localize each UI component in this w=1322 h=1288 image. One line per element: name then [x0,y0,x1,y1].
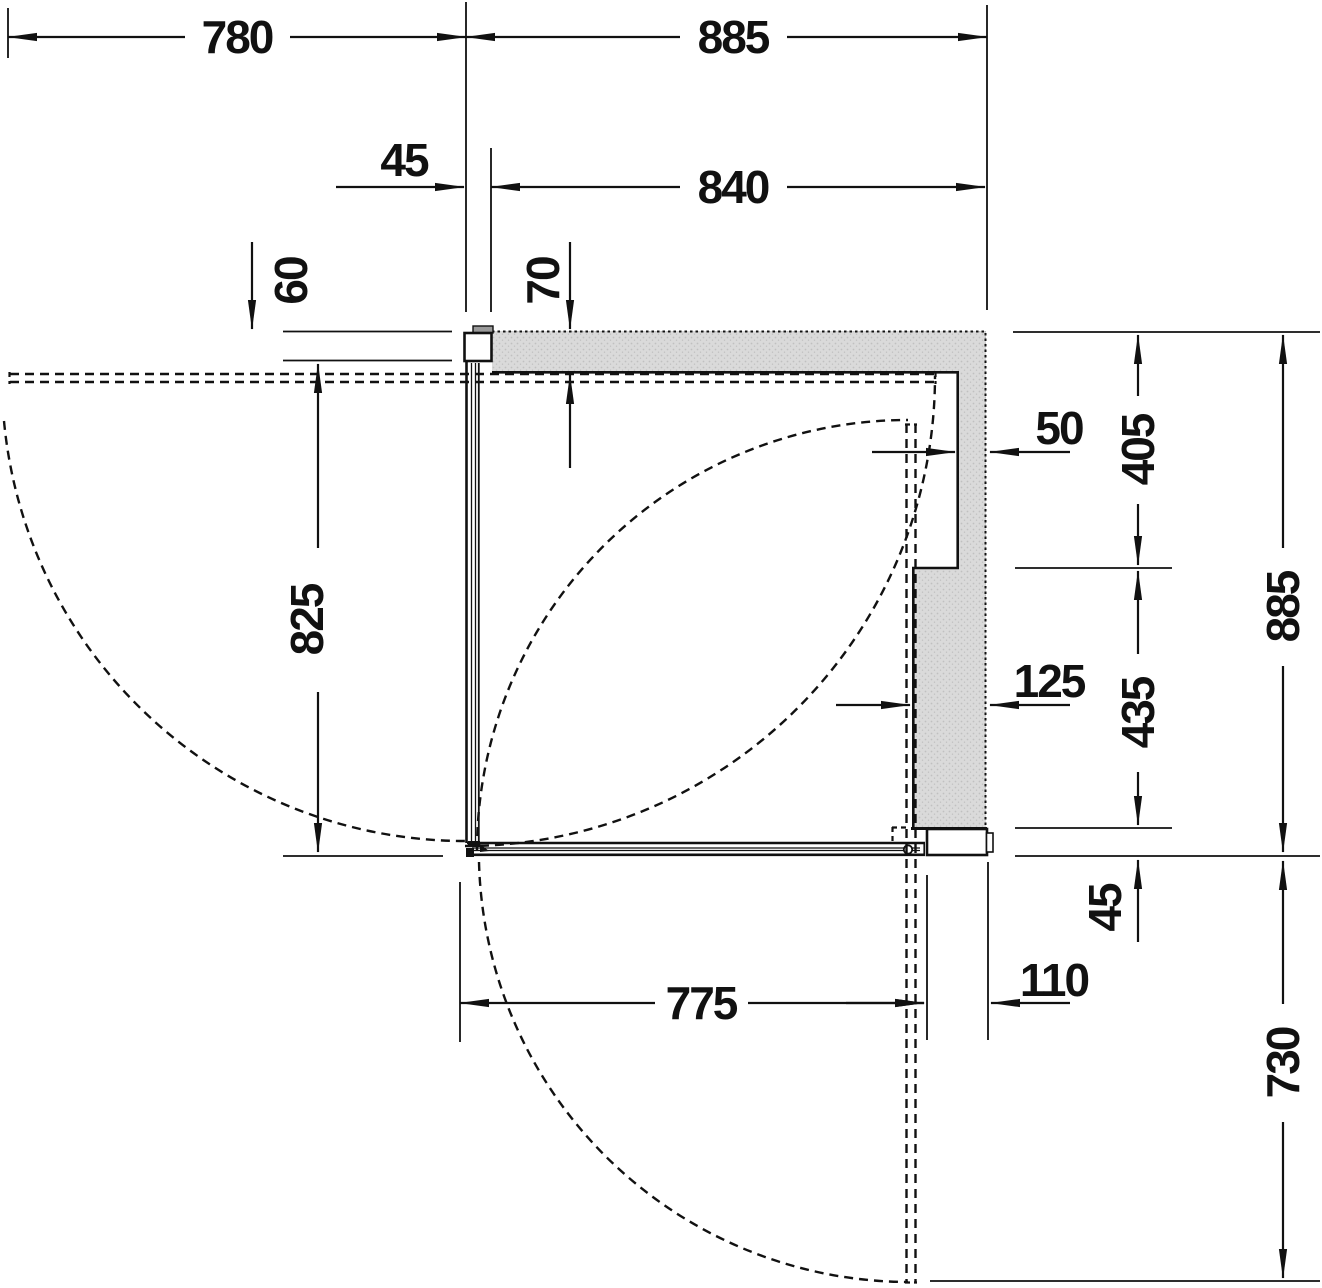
left-door-swing-arc-inward [465,376,935,846]
shower-enclosure-plan-svg: 780 885 45 840 60 70 [0,0,1322,1288]
wall-inner-edge [492,372,958,827]
dim-profile-depth-60: 60 [252,242,317,329]
dimensions: 780 885 45 840 60 70 [8,11,1309,1278]
dim-overall-width-885: 885 [466,11,987,63]
side-panel-glass [467,361,479,843]
dim-label-885-right: 885 [1257,570,1309,642]
dim-label-125: 125 [1014,655,1086,707]
dim-side-panel-825: 825 [281,364,333,852]
wall-profile-top-left [465,326,494,361]
dim-label-730: 730 [1257,1027,1309,1098]
walls [492,331,987,829]
door-roller-pivot [904,845,912,853]
dim-label-45-right: 45 [1079,883,1131,932]
dim-label-825: 825 [281,583,333,655]
wall-body [492,331,986,828]
wall-outer-edge-dotted [492,332,986,828]
extension-lines [8,2,1320,1281]
bottom-track [467,843,925,855]
technical-drawing: 780 885 45 840 60 70 [0,0,1322,1288]
wall-profile-bottom-right [927,829,987,855]
dim-lower-wall-length-435: 435 [1112,571,1164,825]
dim-label-775: 775 [666,977,738,1029]
dim-label-45-top: 45 [380,134,429,186]
dim-entry-width-840: 840 [491,161,985,213]
dim-label-780: 780 [202,11,273,63]
dim-entry-depth-775: 775 [460,977,924,1029]
pivot-foot-bottom-left [466,848,474,857]
dim-label-405: 405 [1112,413,1164,485]
bottom-door-swing-arc-outward [479,862,908,1282]
dim-niche-offset-45: 45 [336,134,464,187]
dim-label-110: 110 [1020,954,1089,1006]
dim-label-70: 70 [517,257,569,305]
dim-swing-left-780: 780 [8,11,466,63]
dim-overall-depth-885: 885 [1257,335,1309,852]
door-open-positions [10,372,937,1283]
dim-label-435: 435 [1112,676,1164,748]
bottom-door-swing-arc-inward [477,420,908,851]
profile-body [465,333,492,361]
dim-upper-wall-length-405: 405 [1112,335,1164,565]
dim-bottom-gap-45: 45 [1079,860,1138,942]
dim-label-840: 840 [698,161,769,213]
dim-door-offset-110: 110 [846,954,1089,1006]
door-swing-arcs [4,376,935,1282]
dim-label-885-top: 885 [698,11,770,63]
dim-label-50: 50 [1035,402,1083,454]
dim-swing-bottom-730: 730 [1257,861,1309,1278]
left-door-swing-arc-outward [4,421,465,841]
profile-tab-bottom-right [987,833,994,852]
dim-label-60: 60 [265,257,317,305]
